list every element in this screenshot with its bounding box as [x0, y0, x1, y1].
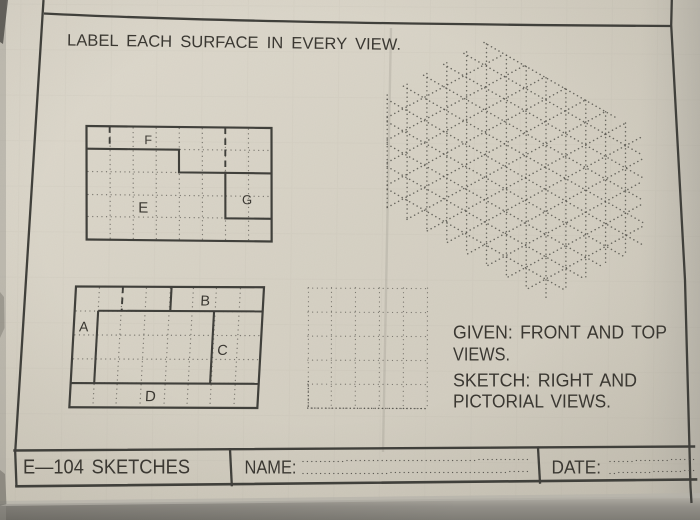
svg-text:NAME:: NAME:: [245, 458, 297, 478]
svg-text:E—104 SKETCHES: E—104 SKETCHES: [23, 457, 190, 479]
svg-text:G: G: [242, 192, 252, 207]
svg-text:SKETCH: RIGHT AND: SKETCH: RIGHT AND: [453, 371, 637, 391]
svg-text:D: D: [145, 388, 157, 405]
svg-text:VIEWS.: VIEWS.: [453, 345, 510, 365]
svg-text:DATE:: DATE:: [552, 458, 602, 478]
svg-text:GIVEN: FRONT AND TOP: GIVEN: FRONT AND TOP: [453, 323, 667, 343]
svg-text:PICTORIAL VIEWS.: PICTORIAL VIEWS.: [453, 392, 611, 412]
svg-text:B: B: [200, 293, 211, 309]
svg-text:F: F: [144, 133, 152, 147]
svg-text:C: C: [217, 343, 228, 359]
svg-text:E: E: [138, 200, 148, 217]
svg-text:A: A: [79, 318, 90, 334]
